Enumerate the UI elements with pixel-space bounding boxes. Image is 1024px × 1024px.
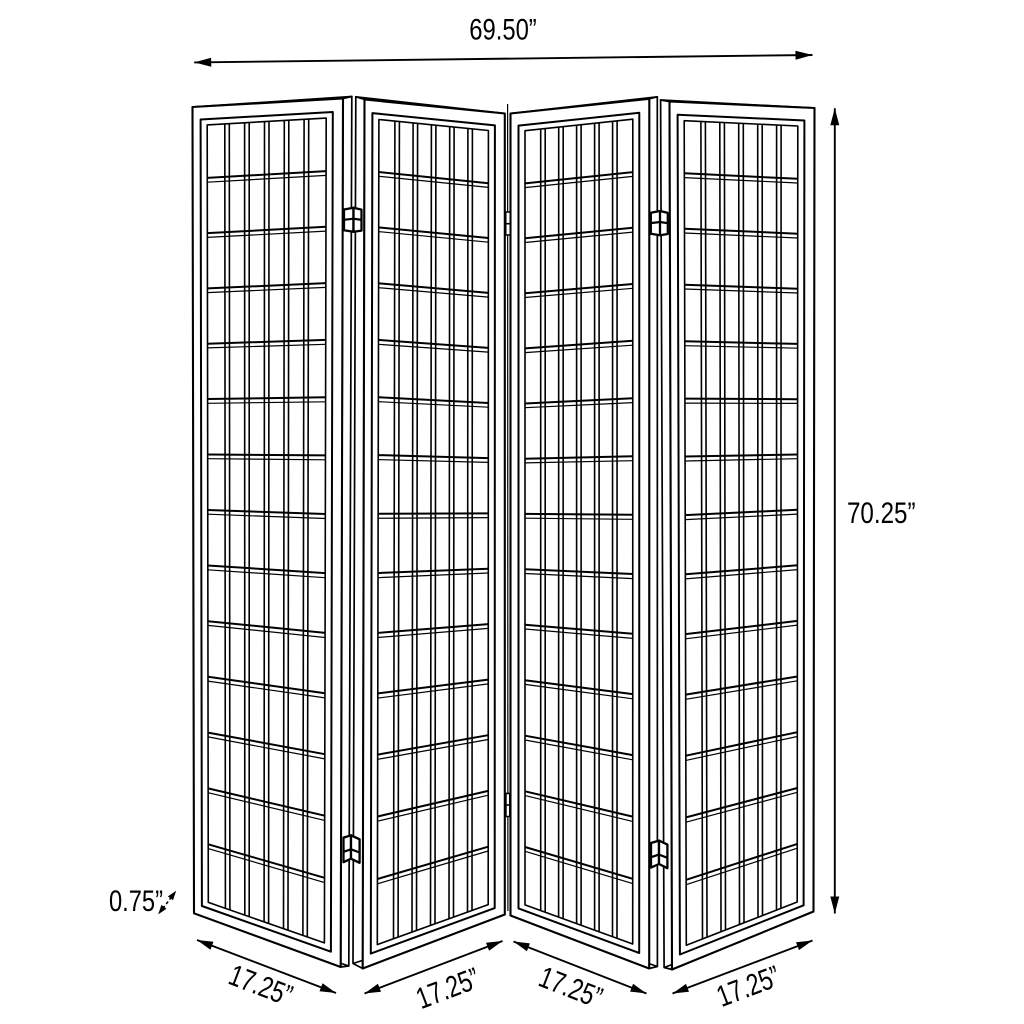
svg-text:17.25”: 17.25” xyxy=(224,959,296,1013)
svg-text:17.25”: 17.25” xyxy=(534,961,607,1015)
svg-text:17.25”: 17.25” xyxy=(712,960,784,1014)
svg-text:70.25”: 70.25” xyxy=(847,497,916,530)
svg-text:0.75”: 0.75” xyxy=(109,885,163,918)
svg-text:69.50”: 69.50” xyxy=(469,14,537,47)
svg-text:17.25”: 17.25” xyxy=(412,962,484,1016)
